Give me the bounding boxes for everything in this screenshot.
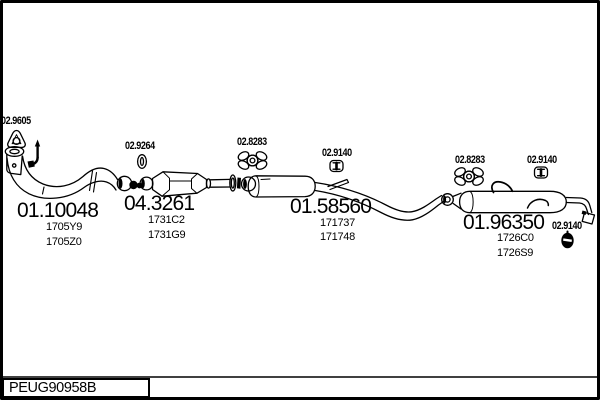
triangle-gasket-icon	[8, 131, 26, 148]
catalog-code: PEUG90958B	[9, 381, 96, 396]
part-ref[interactable]: 171737	[320, 218, 355, 229]
part-number-middle-silencer[interactable]: 01.58560	[290, 196, 371, 217]
oval-clamp-icon	[138, 155, 147, 169]
part-ref[interactable]: 1705Z0	[46, 237, 82, 248]
pipe-clamp-icon	[330, 161, 343, 172]
rear-silencer-drawing	[460, 182, 567, 213]
part-ref[interactable]: 1731C2	[148, 215, 185, 226]
part-label-tail-mount[interactable]: 02.9140	[552, 221, 582, 232]
part-label-front-gasket[interactable]: 02.9605	[1, 116, 31, 127]
pipe-clamp-icon	[535, 167, 548, 178]
rubber-mount-icon	[237, 150, 268, 171]
part-ref[interactable]: 1726S9	[497, 248, 533, 259]
rubber-mount-icon	[453, 166, 484, 187]
flex-joint-drawing	[117, 176, 153, 190]
part-number-front-pipe[interactable]: 01.10048	[17, 200, 98, 221]
filled-rubber-mount-icon	[561, 232, 573, 249]
part-label-mid-mount[interactable]: 02.8283	[237, 137, 267, 148]
part-label-front-clamp[interactable]: 02.9264	[125, 141, 155, 152]
front-flange	[5, 147, 23, 175]
part-number-catalytic-converter[interactable]: 04.3261	[124, 193, 194, 214]
part-label-rear-clamp[interactable]: 02.9140	[527, 155, 557, 166]
part-ref[interactable]: 1731G9	[148, 230, 185, 241]
catalog-code-box: PEUG90958B	[2, 378, 150, 398]
part-label-mid-clamp[interactable]: 02.9140	[322, 148, 352, 159]
front-pipe-drawing	[7, 156, 118, 198]
part-ref[interactable]: 171748	[320, 232, 355, 243]
part-ref[interactable]: 1726C0	[497, 233, 534, 244]
part-label-rear-mount[interactable]: 02.8283	[455, 155, 485, 166]
hook-hanger-icon	[28, 140, 41, 168]
parts-diagram-window: 02.9605 02.9264 02.8283 02.9140 02.8283 …	[0, 0, 600, 400]
mid-hanger-pin-drawing	[328, 180, 349, 190]
part-number-rear-silencer[interactable]: 01.96350	[463, 212, 544, 233]
middle-silencer-drawing	[248, 176, 315, 197]
part-ref[interactable]: 1705Y9	[46, 222, 82, 233]
